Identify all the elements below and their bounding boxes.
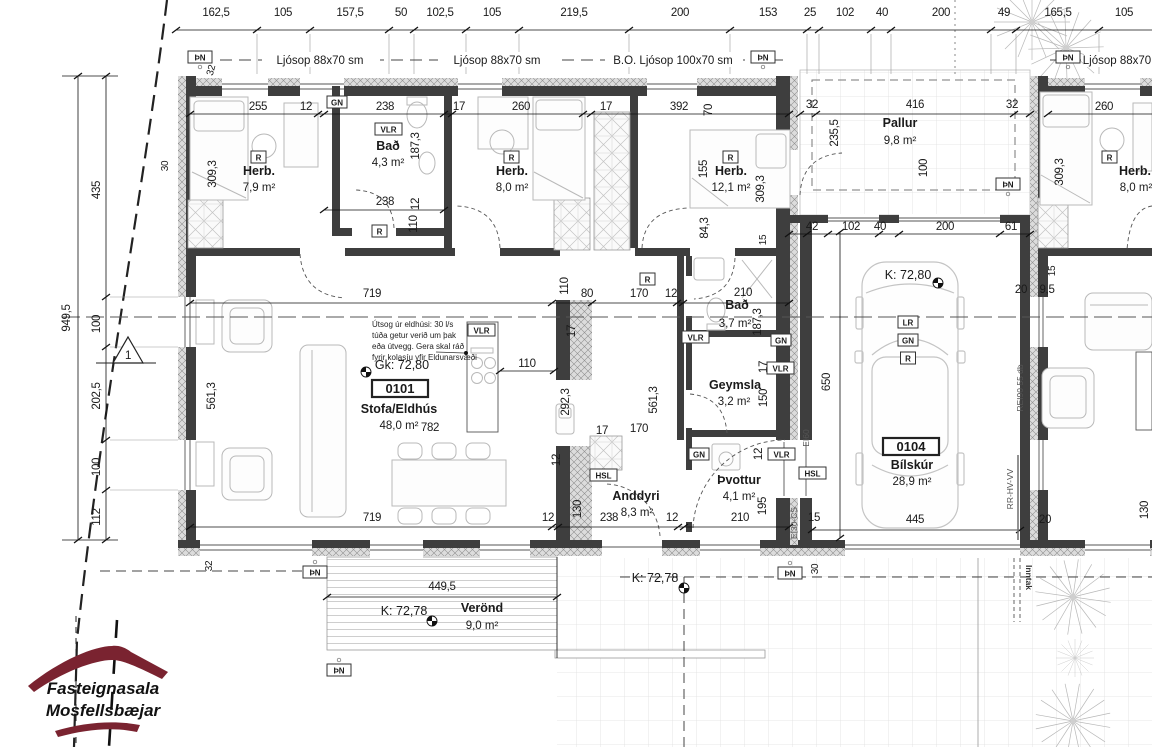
closet <box>594 112 630 250</box>
svg-text:32: 32 <box>204 560 215 571</box>
svg-text:102: 102 <box>836 7 854 19</box>
r-badge: R <box>251 151 266 163</box>
svg-text:112: 112 <box>91 508 103 525</box>
bed <box>533 97 585 200</box>
svg-text:110: 110 <box>518 358 535 370</box>
svg-text:42: 42 <box>806 221 818 233</box>
svg-text:GN: GN <box>693 451 705 460</box>
gn-badge: GN <box>689 448 709 460</box>
svg-text:Anddyri: Anddyri <box>612 489 659 503</box>
closet <box>554 198 590 250</box>
chair <box>432 508 456 524</box>
svg-text:7,9 m²: 7,9 m² <box>243 182 276 194</box>
svg-text:15: 15 <box>1047 265 1058 276</box>
svg-text:12: 12 <box>410 198 422 210</box>
svg-text:392: 392 <box>670 101 688 113</box>
level-marker-icon <box>679 583 689 593</box>
svg-text:219,5: 219,5 <box>560 7 587 19</box>
svg-text:Stofa/Eldhús: Stofa/Eldhús <box>361 402 437 416</box>
svg-text:15: 15 <box>758 234 769 245</box>
room-bad1: Bað 4,3 m² <box>372 139 405 169</box>
svg-text:K: 72,78: K: 72,78 <box>381 604 428 618</box>
svg-text:K: 72,80: K: 72,80 <box>885 268 932 282</box>
property-boundary-line <box>74 0 167 747</box>
svg-text:ÞN: ÞN <box>1002 181 1013 190</box>
svg-text:187,3: 187,3 <box>752 308 764 335</box>
svg-text:R: R <box>1107 154 1113 163</box>
svg-text:R: R <box>645 276 651 285</box>
svg-text:Herb.: Herb. <box>715 164 747 178</box>
svg-text:8,0 m²: 8,0 m² <box>496 182 529 194</box>
svg-text:túða getur verið um þak: túða getur verið um þak <box>372 331 457 340</box>
hsl-badge: HSL <box>590 469 617 481</box>
svg-text:Bað: Bað <box>376 139 400 153</box>
svg-text:80: 80 <box>581 288 593 300</box>
svg-text:Inntak: Inntak <box>1024 565 1034 590</box>
svg-text:EI60: EI60 <box>801 429 811 447</box>
svg-text:12: 12 <box>542 512 554 524</box>
svg-text:Pallur: Pallur <box>883 116 918 130</box>
logo-fasteignasala: Fasteignasala Mosfellsbæjar <box>28 616 168 747</box>
svg-text:GN: GN <box>902 337 914 346</box>
svg-text:ÞN: ÞN <box>757 54 768 63</box>
svg-text:650: 650 <box>821 373 833 391</box>
svg-text:162,5: 162,5 <box>202 7 229 19</box>
svg-text:130: 130 <box>572 500 584 518</box>
svg-text:719: 719 <box>363 288 381 300</box>
svg-text:48,0 m²: 48,0 m² <box>380 420 419 432</box>
chair <box>398 508 422 524</box>
svg-text:15: 15 <box>808 512 820 524</box>
svg-text:R: R <box>509 154 515 163</box>
room-anddyri: Anddyri 8,3 m² <box>612 489 659 519</box>
svg-text:200: 200 <box>932 7 950 19</box>
svg-text:eða útvegg. Gera skal ráð: eða útvegg. Gera skal ráð <box>372 342 465 351</box>
svg-text:R: R <box>728 154 734 163</box>
room-herb2: Herb. 8,0 m² <box>496 164 529 194</box>
toilet-icon <box>407 102 427 128</box>
svg-text:49: 49 <box>998 7 1010 19</box>
svg-text:238: 238 <box>376 196 394 208</box>
svg-text:105: 105 <box>1115 7 1133 19</box>
svg-text:200: 200 <box>936 221 954 233</box>
svg-text:9,8 m²: 9,8 m² <box>884 135 917 147</box>
chair <box>466 508 490 524</box>
chair <box>398 443 422 459</box>
room-stofa: Gk: 72,80 0101 Stofa/Eldhús 48,0 m² <box>361 358 437 432</box>
svg-text:EI30-CS: EI30-CS <box>789 507 799 539</box>
svg-text:12: 12 <box>753 448 765 460</box>
svg-text:210: 210 <box>731 512 749 524</box>
svg-text:Herb.: Herb. <box>1119 164 1151 178</box>
svg-text:Verönd: Verönd <box>461 601 503 615</box>
svg-text:Ljósop 88x70 sm: Ljósop 88x70 sm <box>454 55 541 67</box>
svg-text:238: 238 <box>600 512 618 524</box>
svg-text:130: 130 <box>1139 501 1151 519</box>
svg-text:309,3: 309,3 <box>1054 158 1066 185</box>
vlr-badge: VLR <box>682 331 709 343</box>
svg-text:84,3: 84,3 <box>699 217 711 238</box>
svg-text:VLR: VLR <box>688 334 704 343</box>
svg-text:105: 105 <box>274 7 292 19</box>
lr-badge: LR <box>898 316 918 328</box>
svg-text:0104: 0104 <box>897 439 927 454</box>
svg-text:Þvottur: Þvottur <box>717 473 761 487</box>
svg-text:12: 12 <box>551 454 563 466</box>
svg-text:3,7 m²: 3,7 m² <box>719 318 752 330</box>
chair <box>432 443 456 459</box>
svg-text:155: 155 <box>698 160 710 178</box>
svg-text:195: 195 <box>757 497 769 515</box>
svg-text:187,3: 187,3 <box>410 132 422 159</box>
svg-text:HSL: HSL <box>805 470 821 479</box>
svg-text:fyrir kolasíu yfir Eldunarsvæð: fyrir kolasíu yfir Eldunarsvæði <box>372 353 477 362</box>
svg-text:0101: 0101 <box>386 381 415 396</box>
svg-text:110: 110 <box>559 277 571 294</box>
svg-text:12: 12 <box>665 288 677 300</box>
svg-text:9,5: 9,5 <box>1039 284 1054 296</box>
svg-text:61: 61 <box>1005 221 1017 233</box>
svg-text:GN: GN <box>331 99 343 108</box>
r-badge: R <box>901 352 916 364</box>
svg-text:HSL: HSL <box>596 472 612 481</box>
svg-text:25: 25 <box>804 7 816 19</box>
r-badge: R <box>723 151 738 163</box>
r-badge: R <box>504 151 519 163</box>
svg-text:1: 1 <box>125 350 131 362</box>
svg-text:17: 17 <box>600 101 612 113</box>
svg-text:B.O. Ljósop 100x70 sm: B.O. Ljósop 100x70 sm <box>613 55 733 67</box>
gn-badge: GN <box>771 334 791 346</box>
level-marker-icon <box>361 367 371 377</box>
section-marker: 1 <box>96 337 156 363</box>
car-icon <box>855 262 965 528</box>
r-badge: R <box>640 273 655 285</box>
svg-text:105: 105 <box>483 7 501 19</box>
svg-text:561,3: 561,3 <box>648 386 660 413</box>
svg-text:32: 32 <box>1006 99 1018 111</box>
svg-text:719: 719 <box>363 512 381 524</box>
svg-text:17: 17 <box>566 325 578 337</box>
svg-text:GN: GN <box>775 337 787 346</box>
sink-icon <box>694 258 724 280</box>
svg-text:9,0 m²: 9,0 m² <box>466 620 499 632</box>
svg-text:32: 32 <box>806 99 818 111</box>
sofa <box>1085 293 1152 350</box>
svg-text:R: R <box>905 355 911 364</box>
svg-text:170: 170 <box>630 423 648 435</box>
svg-text:ÞN: ÞN <box>309 569 320 578</box>
svg-text:VLR: VLR <box>774 451 790 460</box>
svg-text:561,3: 561,3 <box>206 382 218 409</box>
closet <box>188 200 223 248</box>
svg-text:200: 200 <box>671 7 689 19</box>
floorplan-canvas: 162,5 105 157,5 50 102,5 105 219,5 200 1… <box>0 0 1152 747</box>
sofa <box>300 345 346 517</box>
svg-text:LR: LR <box>903 319 914 328</box>
room-thvottur: Þvottur 4,1 m² <box>717 473 761 503</box>
shrub-icon <box>1056 639 1094 677</box>
svg-text:309,3: 309,3 <box>207 160 219 187</box>
logo-under-swoosh <box>55 722 140 737</box>
svg-text:Útsog úr eldhúsi: 30 l/s: Útsog úr eldhúsi: 30 l/s <box>372 320 453 329</box>
vlr-badge: VLR <box>375 123 402 135</box>
svg-text:449,5: 449,5 <box>428 581 455 593</box>
svg-text:110: 110 <box>408 215 420 232</box>
svg-text:260: 260 <box>1095 101 1113 113</box>
room-geymsla: Geymsla 3,2 m² <box>709 378 762 408</box>
svg-text:Herb.: Herb. <box>496 164 528 178</box>
svg-text:ÞN: ÞN <box>333 667 344 676</box>
svg-text:30: 30 <box>810 563 821 574</box>
gn-badge: GN <box>327 96 347 108</box>
svg-text:ÞN: ÞN <box>1062 54 1073 63</box>
svg-text:ÞN: ÞN <box>784 570 795 579</box>
svg-text:RR-HV-VV: RR-HV-VV <box>1005 468 1015 509</box>
svg-text:100: 100 <box>91 315 103 333</box>
verond-deck-planks <box>327 557 557 650</box>
svg-text:32: 32 <box>205 63 219 77</box>
window-labels: Ljósop 88x70 sm Ljósop 88x70 sm B.O. Ljó… <box>277 55 1152 67</box>
svg-text:170: 170 <box>630 288 648 300</box>
svg-text:8,3 m²: 8,3 m² <box>621 507 654 519</box>
svg-text:102: 102 <box>842 221 860 233</box>
vlr-badge: VLR <box>767 362 794 374</box>
svg-text:782: 782 <box>421 422 439 434</box>
pn-badge: ÞN <box>303 560 327 578</box>
svg-text:50: 50 <box>395 7 407 19</box>
desk <box>1133 103 1152 171</box>
svg-text:255: 255 <box>249 101 267 113</box>
svg-text:Ljósop 88x70: Ljósop 88x70 <box>1083 55 1151 67</box>
svg-text:R: R <box>256 154 262 163</box>
svg-text:309,3: 309,3 <box>755 175 767 202</box>
svg-text:102,5: 102,5 <box>426 7 453 19</box>
svg-text:VLR: VLR <box>474 327 490 336</box>
svg-text:Ljósop 88x70 sm: Ljósop 88x70 sm <box>277 55 364 67</box>
svg-text:Geymsla: Geymsla <box>709 378 762 392</box>
svg-text:445: 445 <box>906 514 924 526</box>
r-badge: R <box>372 225 387 237</box>
svg-text:4,1 m²: 4,1 m² <box>723 491 756 503</box>
svg-text:260: 260 <box>512 101 530 113</box>
svg-text:12: 12 <box>666 512 678 524</box>
svg-text:17: 17 <box>596 425 608 437</box>
svg-text:3,2 m²: 3,2 m² <box>718 396 751 408</box>
svg-text:70: 70 <box>703 104 715 116</box>
svg-text:Bað: Bað <box>725 298 749 312</box>
svg-text:100: 100 <box>918 159 930 177</box>
pn-badge: ÞN <box>327 658 351 676</box>
svg-text:202,5: 202,5 <box>91 382 103 409</box>
svg-text:4,3 m²: 4,3 m² <box>372 157 405 169</box>
hsl-badge: HSL <box>799 467 826 479</box>
svg-text:ÞN: ÞN <box>194 54 205 63</box>
svg-text:100: 100 <box>91 458 103 476</box>
svg-text:20: 20 <box>1039 514 1051 526</box>
bed <box>1040 92 1092 205</box>
closet <box>590 436 622 470</box>
svg-text:40: 40 <box>876 7 888 19</box>
svg-text:238: 238 <box>376 101 394 113</box>
svg-text:8,0 m²: 8,0 m² <box>1120 182 1152 194</box>
svg-text:REI90 55 db: REI90 55 db <box>1015 364 1025 412</box>
svg-text:12: 12 <box>300 101 312 113</box>
deck-step <box>555 650 765 658</box>
svg-text:R: R <box>377 228 383 237</box>
room-herb4: Herb. 8,0 m² <box>1119 164 1152 194</box>
svg-text:20: 20 <box>1015 284 1027 296</box>
vlr-badge: VLR <box>468 324 495 336</box>
pn-badge: ÞN <box>751 51 775 69</box>
svg-text:12,1 m²: 12,1 m² <box>712 182 751 194</box>
svg-text:Fasteignasala: Fasteignasala <box>47 679 159 698</box>
svg-text:435: 435 <box>91 181 103 199</box>
r-badge: R <box>1102 151 1117 163</box>
chair <box>466 443 490 459</box>
svg-text:VLR: VLR <box>381 126 397 135</box>
svg-text:28,9 m²: 28,9 m² <box>893 476 932 488</box>
svg-text:949,5: 949,5 <box>61 304 73 331</box>
svg-text:17: 17 <box>453 101 465 113</box>
svg-text:157,5: 157,5 <box>336 7 363 19</box>
svg-text:235,5: 235,5 <box>829 119 841 146</box>
level-marker-icon <box>427 616 437 626</box>
svg-text:Bílskúr: Bílskúr <box>891 458 934 472</box>
vlr-badge: VLR <box>768 448 795 460</box>
svg-text:K: 72,78: K: 72,78 <box>632 571 679 585</box>
svg-text:292,3: 292,3 <box>560 388 572 415</box>
dining-table <box>392 460 506 506</box>
svg-text:153: 153 <box>759 7 777 19</box>
floorplan-drawing: 162,5 105 157,5 50 102,5 105 219,5 200 1… <box>0 0 1152 747</box>
svg-text:30: 30 <box>160 160 171 171</box>
svg-text:Herb.: Herb. <box>243 164 275 178</box>
chair <box>1100 128 1124 152</box>
gn-badge: GN <box>898 334 918 346</box>
svg-text:Mosfellsbæjar: Mosfellsbæjar <box>46 701 162 720</box>
svg-text:40: 40 <box>874 221 886 233</box>
level-marker-icon <box>933 278 943 288</box>
svg-text:VLR: VLR <box>773 365 789 374</box>
svg-text:416: 416 <box>906 99 924 111</box>
svg-text:165,5: 165,5 <box>1044 7 1071 19</box>
